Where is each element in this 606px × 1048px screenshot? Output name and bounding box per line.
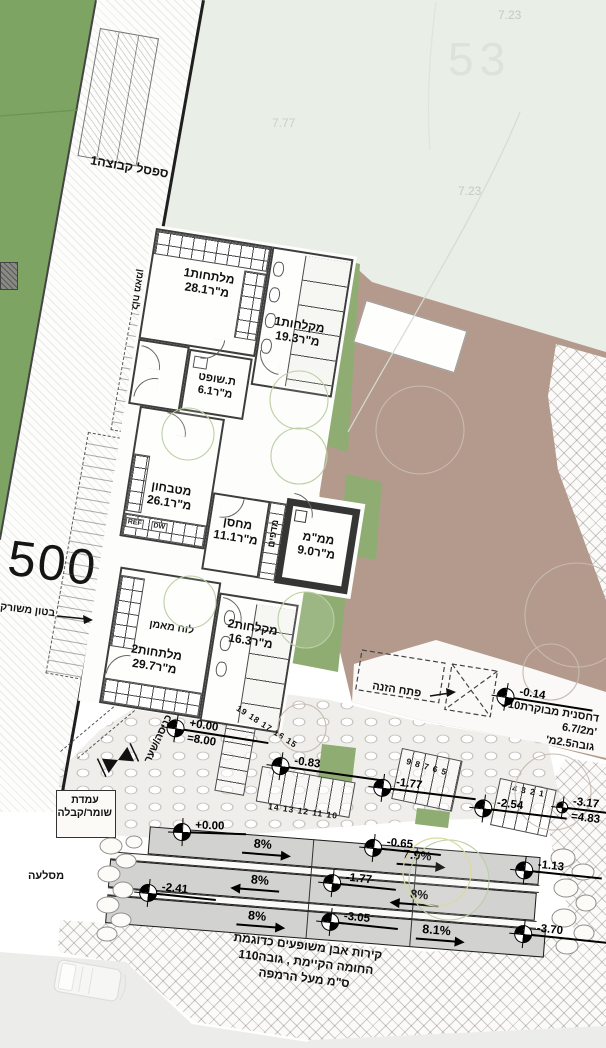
benchmark-icon [363,838,383,858]
benchmark-icon [173,823,192,842]
parcel-53-label: 53 [448,32,511,86]
contour-label-b: 7.77 [272,116,295,130]
benchmark-icon [138,883,158,903]
benchmark-icon [514,861,534,881]
benchmark-icon [320,912,340,932]
room-entry [128,339,190,412]
rockery-label: מסלעה [28,870,64,882]
slope-label: 8% [230,871,289,893]
slope-label: 8% [390,885,449,907]
contour-label-c: 7.23 [458,184,481,198]
benchmark-icon [513,924,533,944]
site-plan-canvas: 7.23 53 7.77 7.23 ספסל קבוצה1 מרחב קו חו… [0,0,606,1048]
benchmark-icon [322,873,342,893]
contour-label-a: 7.23 [498,8,521,22]
guard-label: עמדתשומר/קבלה [58,794,112,820]
field-equipment [0,262,18,290]
benchmark-marker: +0.00 [173,823,247,844]
